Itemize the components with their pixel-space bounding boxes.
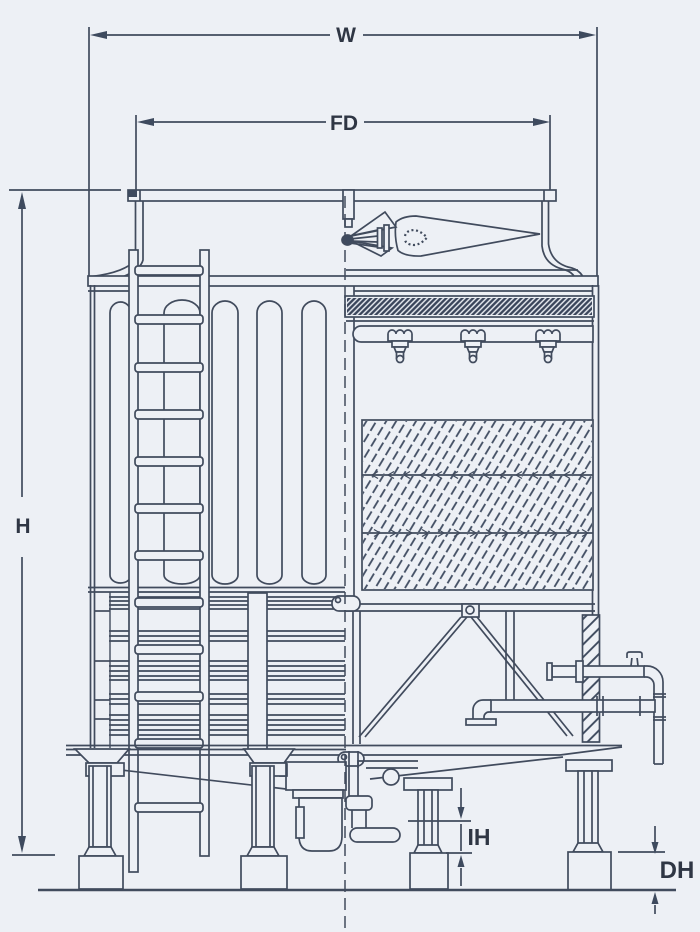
svg-text:IH: IH: [468, 824, 491, 850]
svg-text:DH: DH: [660, 857, 695, 884]
svg-text:H: H: [15, 515, 30, 538]
svg-text:FD: FD: [330, 112, 358, 135]
svg-text:W: W: [336, 24, 356, 47]
